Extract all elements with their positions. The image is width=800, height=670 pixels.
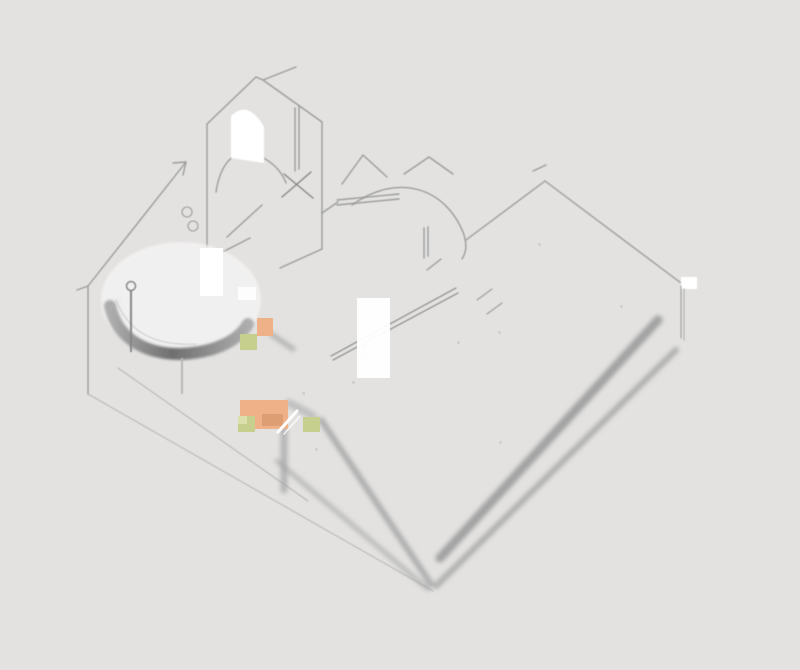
small-box-orange (257, 318, 273, 336)
floor-plan-svg (0, 0, 800, 670)
cabinet-front-dark (262, 414, 283, 426)
speck (302, 392, 305, 395)
highlight-column (200, 248, 223, 296)
highlight-chip (238, 287, 256, 300)
axonometric-floor-plan (0, 0, 800, 670)
speck (538, 243, 541, 246)
speck (620, 305, 623, 308)
small-box-green (240, 334, 257, 350)
white-wall-face (357, 298, 390, 378)
cabinet-green-left-light (238, 416, 247, 424)
speck (457, 341, 460, 344)
speck (499, 441, 502, 444)
speck (315, 448, 318, 451)
speck (352, 381, 355, 384)
cabinet-green-right (303, 417, 320, 432)
speck (498, 331, 501, 334)
right-room-corner-notch (681, 277, 697, 289)
